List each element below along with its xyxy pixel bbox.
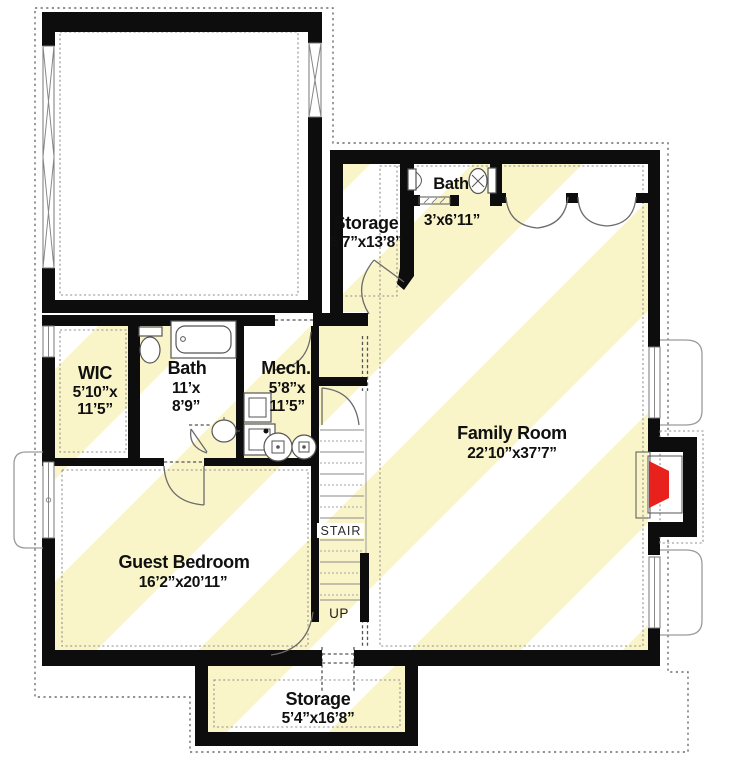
stair-top-wall: [311, 377, 367, 386]
garage-right-window: [309, 43, 321, 117]
bedroom-top-wall-left: [42, 458, 164, 466]
room-dims-bath-mid-2: 8’9”: [172, 398, 200, 415]
family-right-wall-upper: [648, 164, 660, 347]
garage-left-window: [43, 46, 54, 268]
room-dims-mech-2: 11’5”: [269, 398, 305, 415]
window-well-right-top: [660, 340, 702, 425]
room-label-wic: WIC: [78, 363, 112, 383]
room-dims-storage-bottom: 5’4”x16’8”: [282, 710, 355, 727]
room-label-bath-mid: Bath: [168, 358, 207, 378]
room-dims-bath-mid-1: 11’x: [172, 380, 201, 397]
family-right-window-bottom: [649, 557, 660, 628]
window-well-right-bottom: [660, 550, 702, 635]
floor-plan-svg: Storage 6’7”x13’8” Bath 3’x6’11” Family …: [0, 0, 750, 761]
room-dims-bath-top: 3’x6’11”: [424, 212, 480, 229]
left-wall-mid: [42, 357, 55, 462]
bath-top-door-jamb: [450, 195, 459, 206]
room-label-family: Family Room: [457, 423, 567, 443]
bottom-wall-right: [354, 650, 660, 666]
window-well-left: [14, 452, 43, 548]
room-label-storage-bottom: Storage: [286, 689, 351, 709]
family-door-jamb-right: [636, 193, 648, 203]
wic-right-wall: [128, 315, 140, 466]
garage-right-wall-lower: [308, 117, 322, 303]
garage-right-wall-upper: [308, 12, 322, 43]
stair-left-wall: [311, 326, 319, 622]
garage-inner-dotted: [60, 32, 298, 295]
stair-up-label: UP: [329, 606, 349, 621]
garage-top-wall: [42, 12, 322, 32]
family-right-wall-mid2: [648, 537, 660, 555]
room-label-storage-top: Storage: [334, 213, 399, 233]
room-label-mech: Mech.: [261, 358, 311, 378]
room-dims-wic-2: 11’5”: [77, 401, 113, 418]
bathtub-icon: [171, 321, 236, 358]
left-wall-lower: [42, 538, 55, 666]
garage-bottom-wall: [42, 300, 322, 313]
family-door-jamb-left: [500, 193, 506, 203]
family-right-wall-mid1: [648, 418, 660, 437]
upper-top-wall: [330, 150, 660, 164]
room-dims-guest: 16’2”x20’11”: [139, 574, 228, 591]
stair-label: STAIR: [321, 524, 362, 538]
wic-left-window: [43, 326, 54, 357]
family-right-window-top: [649, 347, 660, 418]
floor-plan-canvas: Storage 6’7”x13’8” Bath 3’x6’11” Family …: [0, 0, 750, 761]
room-label-bath-top: Bath: [433, 175, 469, 193]
room-dims-family: 22’10”x37’7”: [467, 445, 556, 462]
fireplace-wall-bottom: [648, 522, 697, 537]
bedroom-left-window: [43, 462, 54, 538]
stair-right-wall-lower: [360, 553, 369, 622]
room-label-guest: Guest Bedroom: [118, 552, 249, 572]
bath-top-bottom-wall: [400, 195, 420, 206]
room-dims-mech-1: 5’8”x: [269, 380, 306, 397]
storage-bottom-bottom-wall: [195, 732, 418, 746]
bath-top-toilet-icon: [469, 168, 496, 194]
garage-left-wall-upper: [42, 12, 55, 46]
bottom-wall-left: [42, 650, 322, 666]
room-dims-storage-top: 6’7”x13’8”: [330, 234, 403, 251]
room-dims-wic-1: 5’10”x: [73, 384, 118, 401]
bath-mid-toilet-icon: [139, 327, 162, 363]
bath-mid-right-wall: [236, 315, 244, 466]
